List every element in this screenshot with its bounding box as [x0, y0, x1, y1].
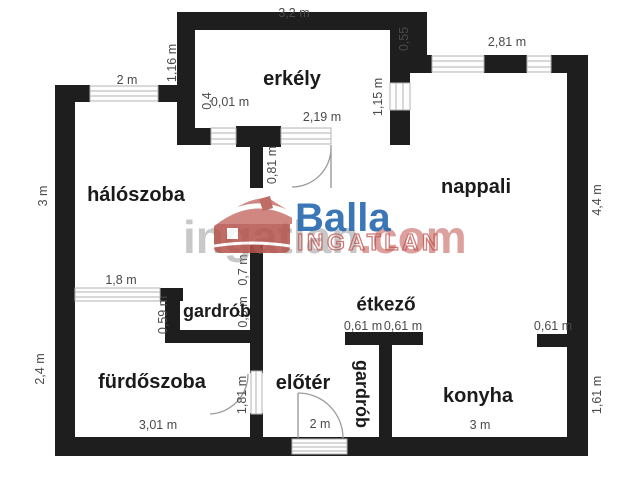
- floor-plan-canvas: 3,2 m 2 m 1,16 m 0,55 2,81 m 1,15 m 0,4 …: [0, 0, 640, 480]
- door-leaf: [251, 371, 262, 414]
- wall-segment: [390, 110, 410, 145]
- room-label-haloszoba: hálószoba: [87, 184, 186, 206]
- window: [90, 86, 158, 101]
- dimension-label: 0,59 m: [156, 296, 170, 334]
- wall-segment: [537, 334, 567, 347]
- wall-segment: [236, 126, 281, 147]
- wall-segment: [409, 55, 432, 73]
- room-label-furdoszoba: fürdőszoba: [98, 371, 207, 393]
- wall-segment: [165, 330, 263, 343]
- dimension-label: 0,55: [397, 27, 411, 51]
- room-label-gardrob-felso: gardrób: [183, 301, 251, 321]
- wall-segment: [484, 55, 527, 73]
- doors: [210, 145, 343, 438]
- dimension-label: 2 m: [310, 417, 331, 431]
- dimension-label: 3,01 m: [139, 418, 177, 432]
- wall-segment: [551, 55, 588, 73]
- dimension-label: 3 m: [36, 186, 50, 207]
- balla-house-icon: [208, 196, 294, 253]
- wall-segment: [250, 343, 263, 373]
- wall-segment: [195, 128, 211, 145]
- dimension-label: 2 m: [117, 73, 138, 87]
- dimension-label: 0,61 m: [344, 319, 382, 333]
- wall-segment: [345, 332, 423, 345]
- window: [211, 128, 236, 144]
- wall-segment: [177, 12, 195, 145]
- window: [390, 83, 410, 110]
- entry-door: [292, 439, 347, 454]
- room-label-erkely: erkély: [263, 68, 322, 90]
- dimension-label: 1,61 m: [590, 376, 604, 414]
- window: [75, 288, 160, 301]
- wall-segment: [409, 30, 427, 55]
- room-label-etkezo: étkező: [356, 295, 415, 316]
- dimension-label: 0,01 m: [211, 95, 249, 109]
- wall-segment: [250, 413, 263, 437]
- room-label-gardrob-also: gardrób: [352, 360, 372, 428]
- dimension-label: 0,61 m: [534, 319, 572, 333]
- dimension-label: 4,4 m: [590, 184, 604, 215]
- floor-plan: 3,2 m 2 m 1,16 m 0,55 2,81 m 1,15 m 0,4 …: [0, 0, 640, 480]
- room-label-konyha: konyha: [443, 385, 514, 407]
- dimension-label: 1,8 m: [105, 273, 136, 287]
- window: [527, 56, 551, 72]
- dimension-label: 0,81 m: [265, 146, 279, 184]
- wall-segment: [55, 85, 75, 456]
- room-label-eloter: előtér: [276, 372, 331, 394]
- window: [432, 56, 484, 72]
- wall-segment: [567, 55, 588, 456]
- watermark-brand-caps: INGATLAN: [297, 229, 442, 255]
- dimension-label: 1,15 m: [371, 78, 385, 116]
- dimension-label: 2,19 m: [303, 110, 341, 124]
- dimension-label: 1,16 m: [165, 44, 179, 82]
- door-arc: [298, 393, 343, 438]
- watermark: ingatlan.com Balla INGATLAN: [183, 196, 467, 263]
- wall-segment: [379, 345, 392, 437]
- door-arc: [292, 148, 331, 187]
- dimension-label: 0,61 m: [384, 319, 422, 333]
- dimension-label: 3,2 m: [278, 6, 309, 20]
- dimension-label: 2,81 m: [488, 35, 526, 49]
- room-label-nappali: nappali: [441, 176, 511, 198]
- dimension-label: 3 m: [470, 418, 491, 432]
- dimension-label: 2,4 m: [33, 353, 47, 384]
- wall-segment: [250, 147, 263, 188]
- window: [281, 128, 331, 144]
- wall-segment: [55, 85, 90, 102]
- dimension-label: 1,81 m: [235, 376, 249, 414]
